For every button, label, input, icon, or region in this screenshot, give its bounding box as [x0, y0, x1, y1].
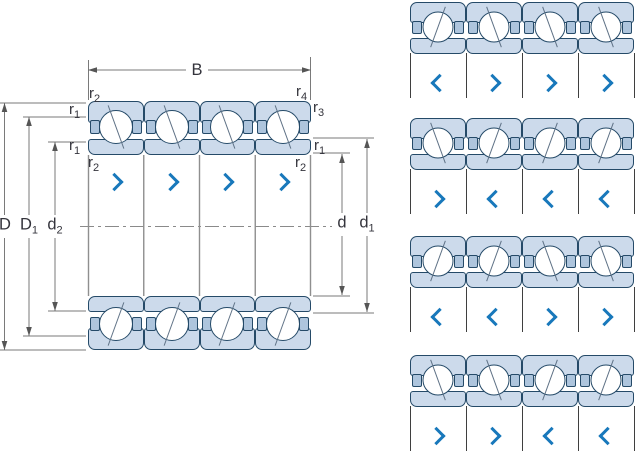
raceway-block [454, 374, 464, 388]
fillet-label-r1-left-lower: r1 [69, 139, 80, 155]
raceway-block [566, 21, 576, 35]
bearing-cross-section [578, 355, 634, 407]
dim-label-D: D [0, 217, 11, 234]
arrangement-divider-line [634, 169, 635, 214]
bearing-cross-section [522, 236, 578, 288]
dim-label-d2: d2 [47, 217, 62, 234]
arrangement-divider-line [466, 406, 467, 451]
raceway-block [454, 137, 464, 151]
raceway-block [510, 255, 520, 269]
arrangement-divider-line [522, 169, 523, 214]
bearing-cross-section [578, 118, 634, 170]
raceway-block [299, 317, 309, 331]
raceway-block [524, 255, 534, 269]
raceway-block [622, 374, 632, 388]
bearing-technical-drawing: B D D1 d2 d d1 r2 r4 r1 r1 r2 r3 r1 r2 [0, 0, 638, 453]
raceway-block [132, 120, 142, 134]
dim-label-B: B [191, 63, 202, 77]
arrangement-divider-line [634, 53, 635, 98]
raceway-block [468, 137, 478, 151]
raceway-block [243, 317, 253, 331]
fillet-label-r2-below-left: r2 [88, 156, 99, 172]
raceway-block [510, 21, 520, 35]
bearing-cross-section [144, 101, 200, 155]
dim-label-d1: d1 [359, 215, 374, 232]
bearing-cross-section [410, 118, 466, 170]
raceway-block [468, 374, 478, 388]
arrangement-divider-line [466, 287, 467, 332]
bearing-cross-section [578, 2, 634, 54]
bearing-cross-section [200, 101, 256, 155]
bearing-cross-section [255, 296, 311, 350]
fillet-label-r1-left-upper: r1 [69, 103, 80, 119]
raceway-block [622, 21, 632, 35]
fillet-label-r1-right-mid: r1 [314, 139, 325, 155]
raceway-block [468, 21, 478, 35]
dim-label-d: d [337, 215, 346, 232]
arrangement-divider-line [578, 169, 579, 214]
arrangement-divider-line [578, 406, 579, 451]
arrangement-divider-line [410, 406, 411, 451]
bearing-cross-section [410, 355, 466, 407]
raceway-block [132, 317, 142, 331]
bearing-cross-section [255, 101, 311, 155]
arrangement-divider-line [410, 287, 411, 332]
arrangement-divider-line [634, 287, 635, 332]
raceway-block [454, 21, 464, 35]
raceway-block [580, 21, 590, 35]
bearing-cross-section [144, 296, 200, 350]
raceway-block [580, 137, 590, 151]
raceway-block [566, 374, 576, 388]
arrangement-divider-line [634, 406, 635, 451]
bearing-cross-section [410, 2, 466, 54]
raceway-block [622, 255, 632, 269]
bearing-cross-section [88, 296, 144, 350]
bearing-cross-section [522, 2, 578, 54]
raceway-block [524, 137, 534, 151]
raceway-block [188, 120, 198, 134]
raceway-block [510, 374, 520, 388]
raceway-block [243, 120, 253, 134]
raceway-block [566, 137, 576, 151]
fillet-label-r3-right-upper: r3 [313, 101, 324, 117]
bearing-cross-section [466, 2, 522, 54]
raceway-block [510, 137, 520, 151]
raceway-block [566, 255, 576, 269]
arrangement-divider-line [410, 169, 411, 214]
arrangement-divider-line [522, 53, 523, 98]
bearing-cross-section [88, 101, 144, 155]
raceway-block [412, 21, 422, 35]
arrangement-divider-line [466, 53, 467, 98]
bearing-cross-section [466, 355, 522, 407]
arrangement-divider-line [410, 53, 411, 98]
bearing-cross-section [466, 236, 522, 288]
bearing-cross-section [522, 355, 578, 407]
raceway-block [188, 317, 198, 331]
raceway-block [299, 120, 309, 134]
bearing-cross-section [466, 118, 522, 170]
raceway-block [580, 374, 590, 388]
raceway-block [524, 374, 534, 388]
arrangement-divider-line [522, 287, 523, 332]
raceway-block [454, 255, 464, 269]
raceway-block [524, 21, 534, 35]
fillet-label-r2-below-right: r2 [295, 156, 306, 172]
bearing-cross-section [522, 118, 578, 170]
raceway-block [622, 137, 632, 151]
bearing-cross-section [578, 236, 634, 288]
arrangement-divider-line [578, 287, 579, 332]
arrangement-divider-line [578, 53, 579, 98]
bearing-cross-section [410, 236, 466, 288]
raceway-block [468, 255, 478, 269]
fillet-label-r2-top-left: r2 [89, 87, 100, 103]
dim-label-D1: D1 [20, 217, 38, 234]
arrangement-divider-line [522, 406, 523, 451]
raceway-block [412, 374, 422, 388]
raceway-block [580, 255, 590, 269]
raceway-block [412, 137, 422, 151]
arrangement-divider-line [466, 169, 467, 214]
fillet-label-r4-top-right: r4 [296, 85, 307, 101]
bearing-cross-section [200, 296, 256, 350]
raceway-block [412, 255, 422, 269]
